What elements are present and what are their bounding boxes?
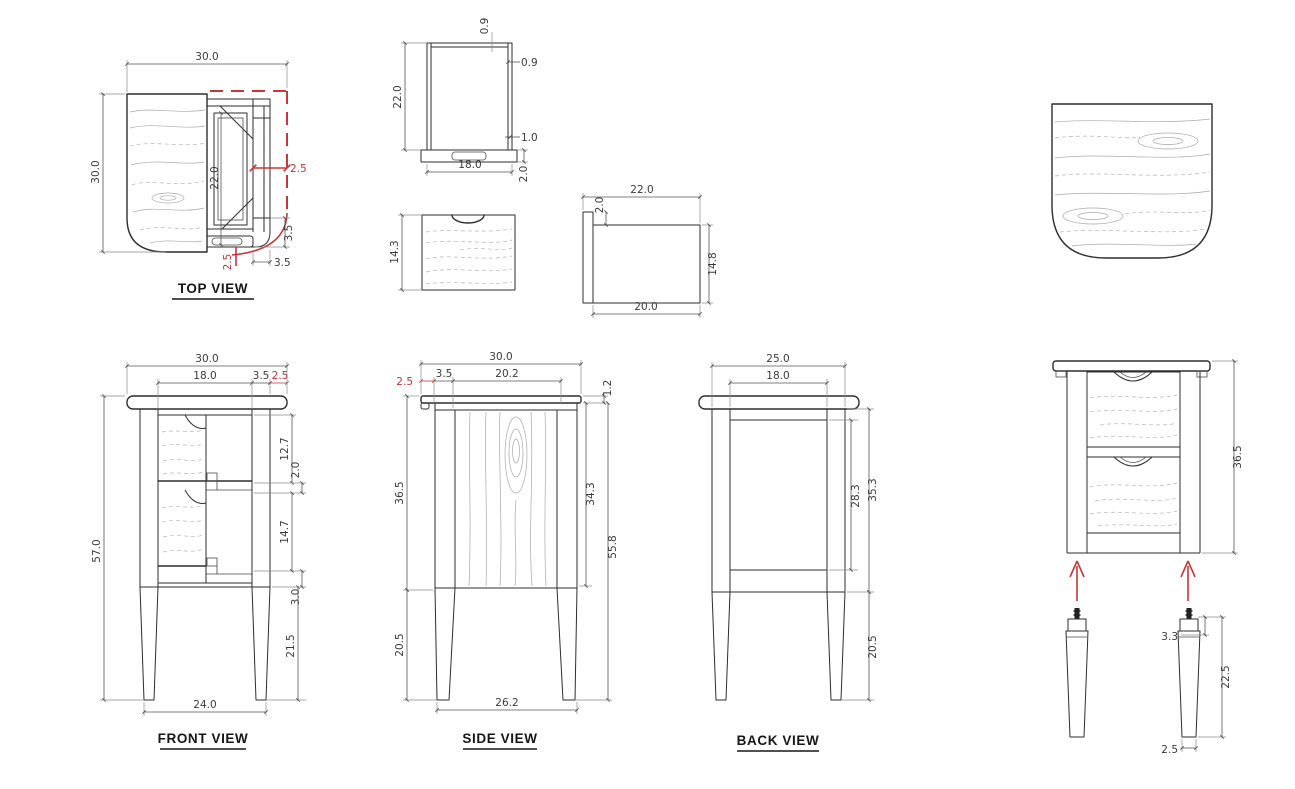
dim-back-leg: 20.5	[867, 635, 879, 658]
dim-front-leg: 21.5	[285, 634, 297, 657]
front-view: 30.0 18.0 3.5 2.5 57.0 12.7 2.0 14.7 3.0…	[91, 353, 306, 749]
top-view-label: TOP VIEW	[178, 281, 248, 296]
dim-side-body: 36.5	[394, 481, 406, 504]
dim-side-overall: 55.8	[607, 535, 619, 558]
dim-front-overhang: 2.5	[272, 370, 289, 382]
front-view-label: FRONT VIEW	[158, 731, 249, 746]
drawer-side-detail-view: 22.0 2.0 14.8 20.0	[583, 184, 719, 318]
dim-front-stile: 3.5	[253, 370, 270, 382]
dim-leg-length: 22.5	[1220, 665, 1232, 688]
dim-top-width: 30.0	[195, 51, 218, 63]
dim-top-side-rail: 2.5	[290, 163, 307, 175]
dim-top-opening-depth: 22.0	[209, 166, 221, 189]
dim-drawer-front-height: 14.3	[389, 240, 401, 263]
dim-frame-base: 2.0	[518, 166, 530, 183]
dim-frame-height: 22.0	[392, 85, 404, 108]
assembly-view: 36.5	[1053, 361, 1244, 601]
dim-side-panel: 20.2	[495, 368, 518, 380]
dim-frame-top-rail: 0.9	[479, 18, 491, 35]
side-view-label: SIDE VIEW	[462, 731, 537, 746]
assembly-arrow-left-icon	[1070, 561, 1084, 601]
dim-leg-foot: 2.5	[1161, 744, 1178, 756]
tabletop-detail-view	[1052, 104, 1212, 258]
dim-leg-top-section: 3.3	[1161, 631, 1178, 643]
dim-side-overhang: 2.5	[396, 376, 413, 388]
dim-top-corner-v: 3.5	[283, 225, 295, 242]
dim-frame-width: 18.0	[458, 159, 481, 171]
frame-detail-view: 22.0 0.9 0.9 1.0 18.0 2.0	[392, 18, 538, 183]
dim-back-panel-height: 28.3	[850, 484, 862, 507]
dim-front-leg-span: 24.0	[193, 699, 216, 711]
dim-drawer-side-bottom: 20.0	[634, 301, 657, 313]
dim-side-top-thickness: 1.2	[602, 380, 614, 397]
back-view: 25.0 18.0 28.3 35.3 20.5 BACK VIEW	[699, 353, 879, 751]
dim-front-opening: 18.0	[193, 370, 216, 382]
dim-top-depth: 30.0	[90, 160, 102, 183]
dim-front-bottom-rail: 3.0	[290, 589, 302, 606]
dim-drawer-side-back-drop: 2.0	[594, 197, 606, 214]
dim-drawer-side-height: 14.8	[707, 252, 719, 275]
dim-front-upper-drawer: 12.7	[279, 437, 291, 460]
side-view: 30.0 2.5 3.5 20.2 1.2 36.5 34.3 55.8 20.…	[394, 351, 619, 749]
dim-top-slide-offset: 2.5	[222, 254, 234, 271]
dim-drawer-side-length: 22.0	[630, 184, 653, 196]
leg-detail-right: 3.3 22.5 2.5	[1161, 608, 1232, 756]
dim-side-depth: 30.0	[489, 351, 512, 363]
top-view: 30.0 30.0 22.0 2.5 3.5 3.5 2.5 TOP VIEW	[90, 51, 307, 299]
dim-top-corner-h: 3.5	[274, 257, 291, 269]
dim-back-width: 25.0	[766, 353, 789, 365]
dim-front-lower-drawer: 14.7	[279, 520, 291, 543]
dim-side-leg: 20.5	[394, 633, 406, 656]
dim-front-width: 30.0	[195, 353, 218, 365]
dim-frame-lip: 1.0	[521, 132, 538, 144]
dim-side-panel-height: 34.3	[585, 482, 597, 505]
dim-frame-side-rail: 0.9	[521, 57, 538, 69]
dim-front-mid-rail: 2.0	[290, 462, 302, 479]
dim-front-height: 57.0	[91, 539, 103, 562]
back-view-label: BACK VIEW	[737, 733, 820, 748]
dim-back-panel-width: 18.0	[766, 370, 789, 382]
dim-side-leg-front: 3.5	[436, 368, 453, 380]
leg-detail-left	[1066, 608, 1088, 737]
dim-side-leg-span: 26.2	[495, 697, 518, 709]
assembly-arrow-right-icon	[1181, 561, 1195, 601]
technical-drawing-canvas: 30.0 30.0 22.0 2.5 3.5 3.5 2.5 TOP VIEW …	[0, 0, 1295, 789]
dim-assembly-body: 36.5	[1232, 445, 1244, 468]
dim-back-body: 35.3	[867, 478, 879, 501]
drawer-front-detail-view: 14.3	[389, 215, 515, 290]
